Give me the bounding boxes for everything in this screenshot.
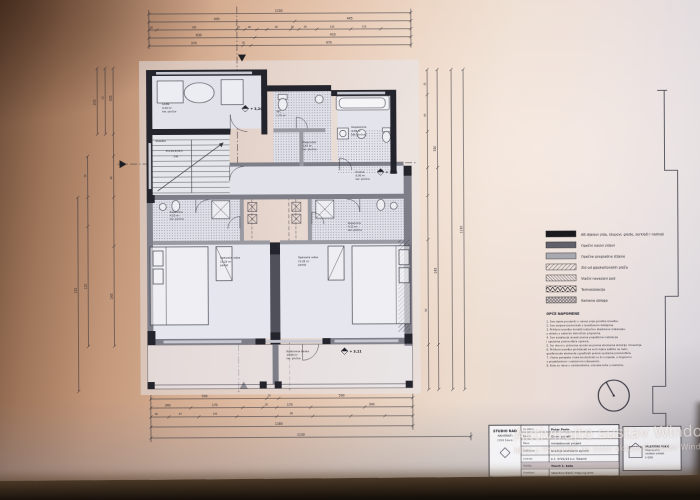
room-name: Kupaonica (170, 210, 183, 214)
office-name-2: ARHITEKTI (498, 434, 513, 438)
general-notes: OPĆE NAPOMENE 1. Sve mjere provjeriti u … (546, 310, 642, 367)
dim-label: 350 (433, 146, 437, 152)
dim-label: 90 (155, 413, 158, 416)
room-name: Spavaća soba (220, 256, 240, 260)
tb-row-label: Sadržaj: (523, 464, 532, 467)
tb-row-value: Tlocrt 1. kata (551, 464, 573, 468)
dim-label: 245 (434, 268, 438, 274)
legend-label: Vlačni nevezani pod (581, 276, 615, 280)
legend-label: Zid od gipskartonskih ploča (581, 265, 628, 269)
room-area: 9,30 m² (162, 106, 172, 110)
room-floor: ker. pločice (287, 356, 302, 360)
room-floor: ker. pločice (356, 177, 371, 181)
dim-label: 335 (109, 95, 113, 101)
apartment-divider-wall (270, 242, 281, 344)
tb-row-label: Projektant: (523, 471, 535, 474)
level-value: + 3,11 (386, 170, 399, 174)
dim-label: 445 (347, 17, 353, 21)
dim-label: 590 (339, 394, 345, 398)
room-name: Hodnik (356, 170, 365, 174)
room-area: 10,66 m² (287, 353, 298, 357)
room-floor: ker. pločice (162, 109, 177, 113)
notes-title: OPĆE NAPOMENE (546, 311, 580, 316)
dim-label: 30 (84, 174, 87, 177)
level-value: + 3,24 (250, 107, 263, 111)
dim-label: 390 (192, 26, 197, 29)
dim-label: 170 (287, 403, 293, 407)
dim-label: 370 (191, 41, 197, 45)
dim-label: 340 (369, 402, 375, 406)
room-area: 4,76 m² (351, 129, 361, 133)
watermark-line-1: Aktivirajte sustav Windows (514, 422, 700, 444)
room-floor: ker. pločice (170, 217, 185, 221)
dim-label: 1130 (459, 226, 463, 234)
office-city: 22000 Šibenik (497, 439, 513, 442)
dim-label: 245 (110, 293, 114, 299)
room-area: 8,06 m² (356, 174, 366, 178)
legend-swatch-insulation (546, 286, 576, 292)
dim-label: 90 (424, 113, 427, 116)
dimension-chains-bottom (149, 393, 472, 442)
boundary-step-line (651, 90, 679, 426)
windows-activation-watermark: Aktivirajte sustav Windows Idite u Posta… (514, 422, 700, 455)
dim-label: 340 (165, 404, 171, 408)
stamp-line: ovlašteni arhitekt (645, 453, 664, 456)
legend: AB dijelovi zida, stupovi, grede, serkla… (546, 230, 664, 303)
legend-label: Opečne pregradne stijene (581, 254, 625, 258)
loggia-furniture-icon (157, 80, 243, 105)
dim-label: 30 (291, 26, 294, 29)
dim-label: 35 (424, 82, 427, 85)
legend-label: Termoizolacija (580, 287, 605, 291)
room-floor: ker. pločice (351, 132, 366, 136)
room-area: 4,10 m² (170, 213, 180, 217)
room-area: 21,06 m² (298, 259, 309, 263)
dim-label: 87 (179, 413, 182, 416)
dim-label: 590 (202, 394, 208, 398)
dim-label: 95 (304, 26, 307, 29)
stamp-line: A 4248 (645, 456, 653, 459)
tb-row-label: Lokacija: (523, 457, 533, 460)
dimension-labels-left: 335 23 205 90 245 30 120 152 (73, 95, 114, 299)
dim-label: 410 (330, 33, 336, 37)
dim-label: 40 (248, 26, 251, 29)
dim-label: 110 (362, 26, 367, 29)
legend-swatch-gypsum (546, 264, 576, 270)
dimension-chains-top (147, 9, 412, 49)
blueprint-photo: 1130 495 445 30 390 25 40 90 30 95 130 1… (0, 0, 700, 500)
stair-riser: 15×16,4/30,5 (165, 149, 183, 153)
room-floor: parket (220, 263, 228, 267)
room-floor: ker. pločice (348, 228, 363, 232)
room-name: Pretprostor (302, 140, 317, 144)
north-arrow-icon (598, 380, 629, 411)
room-area: 1,70 m² (276, 113, 286, 117)
room-name: Spavaća soba (298, 255, 318, 259)
room-area: 4,12 m² (348, 225, 358, 229)
room-name: Kupaonica (351, 125, 366, 129)
dim-label: 30 (150, 27, 153, 30)
dim-label: 25 (268, 395, 271, 398)
dim-label: 90 (110, 176, 113, 179)
dim-label: 630 (196, 33, 202, 37)
room-name: Stubište (155, 139, 166, 143)
dim-label: 1130 (297, 433, 305, 437)
tb-row-value: Valentino Rakić mag.ing.arch. (551, 471, 594, 475)
dim-label: 170 (212, 403, 218, 407)
room-name: WC (276, 109, 281, 113)
tb-row-value: k.č. 3721/14 k.o. Šibenik (551, 456, 587, 461)
legend-label: Kamena obloga (581, 298, 607, 302)
dim-label: 90 (275, 26, 278, 29)
room-area: 23,26 m² (220, 259, 231, 263)
legend-swatch-ab (546, 231, 576, 237)
dim-label: 30 (242, 42, 245, 45)
room-name: Lođa (162, 102, 169, 106)
legend-swatch-partition (546, 253, 576, 259)
legend-label: AB dijelovi zida, stupovi, grede, serkla… (581, 232, 664, 236)
room-area: 1,62 m² (302, 144, 312, 148)
room-floor: parket (298, 263, 306, 267)
room-floor: ker. pločice (302, 147, 317, 151)
dim-label: 495 (214, 17, 220, 21)
dim-label: 90 (425, 308, 428, 311)
dim-label: 1130 (275, 9, 283, 13)
dimension-labels-bottom: 590 25 590 340 170 30 170 340 90 87 143 … (155, 393, 375, 437)
room-name: Natkrivena terasa (287, 349, 310, 353)
legend-swatch-brick (546, 242, 576, 248)
legend-swatch-stone (546, 297, 576, 303)
note-line: 8. Kote su dane u centimetrima, visinske… (547, 363, 624, 367)
dim-label: 205 (93, 99, 97, 105)
dim-label: 30 (265, 404, 268, 407)
dim-label: 1180 (275, 422, 283, 426)
dimension-labels-right: 35 90 350 245 90 1130 (424, 82, 464, 312)
room-name: Kupaonica (348, 221, 361, 225)
dim-label: 470 (326, 41, 332, 45)
dim-label: 98 (290, 412, 293, 415)
dim-label: 120 (84, 283, 88, 289)
dim-label: 23 (102, 96, 105, 99)
dim-label: 143 (213, 413, 218, 416)
dim-label: 25 (237, 26, 240, 29)
level-value: + 3,11 (350, 349, 363, 353)
dim-label: 130 (330, 26, 335, 29)
legend-label: Opečni nosivi zidovi (581, 243, 615, 247)
legend-swatch-screed (546, 275, 576, 281)
dimension-chains-left (75, 67, 116, 393)
stair-width: 240 (173, 154, 178, 158)
dim-label: 152 (74, 287, 78, 293)
